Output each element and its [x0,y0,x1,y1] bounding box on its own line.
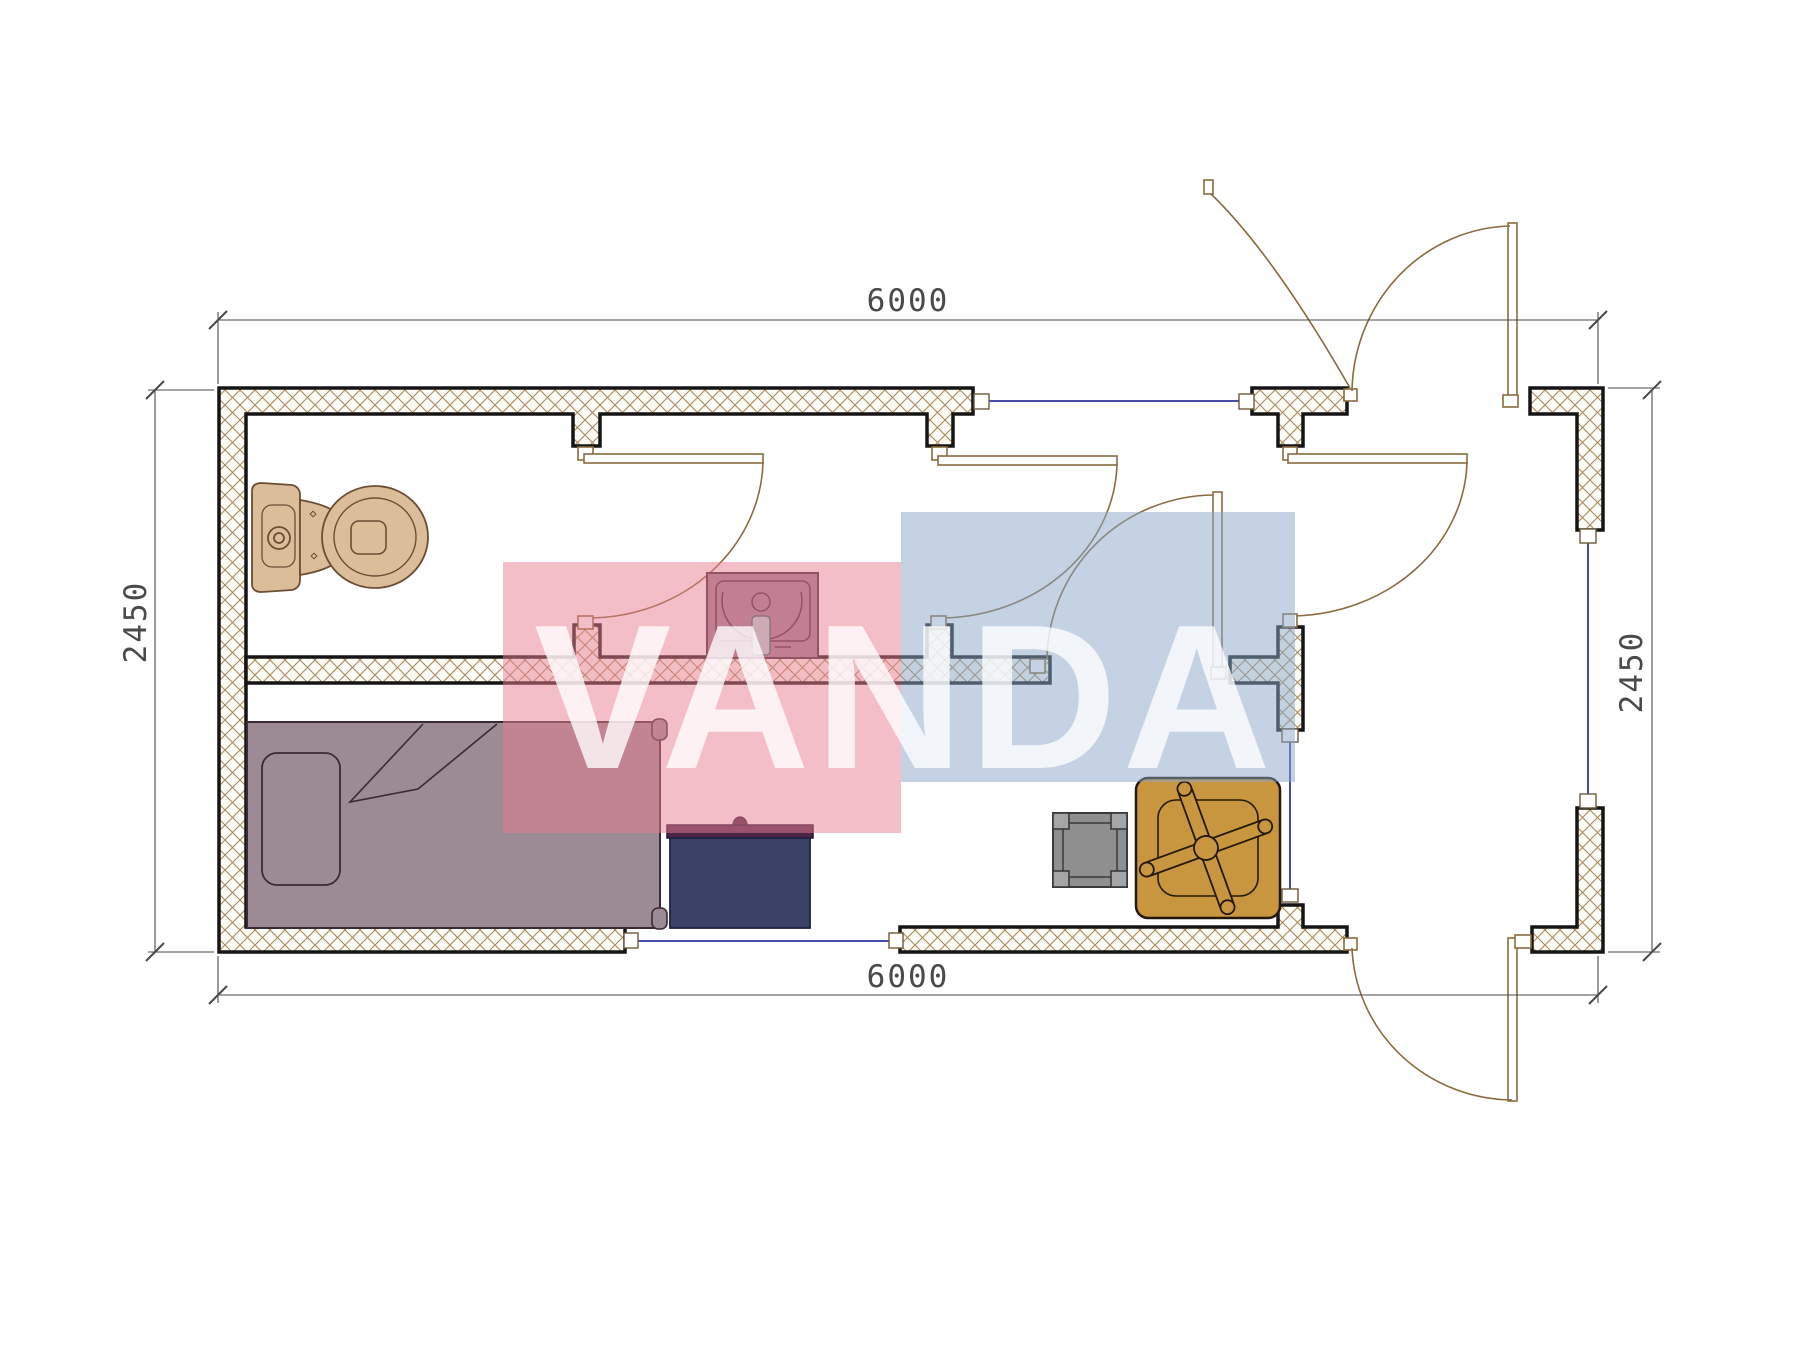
dimension-width-bottom: 6000 [867,959,950,995]
stool-icon [1053,813,1127,887]
desk-icon [667,817,813,928]
wall-bottom-right-segment [900,905,1347,952]
floor-plan-canvas: 6000 6000 2450 2450 VANDA [0,0,1800,1350]
wall-top-right-corner [1530,388,1603,530]
door-entrance-top [1204,180,1518,407]
watermark: VANDA [503,512,1295,833]
floor-plan-drawing: 6000 6000 2450 2450 VANDA [0,0,1800,1350]
watermark-text: VANDA [534,582,1276,812]
wall-top-t-piece [1252,388,1347,446]
door-entrance-bottom [1344,935,1531,1101]
dimension-height-right: 2450 [1614,631,1650,714]
wall-bottom-right-corner [1532,808,1603,952]
dimension-width-top: 6000 [867,283,950,319]
dimension-height-left: 2450 [118,581,154,664]
toilet-icon [252,483,428,592]
door-hall-vestibule [1283,447,1467,627]
